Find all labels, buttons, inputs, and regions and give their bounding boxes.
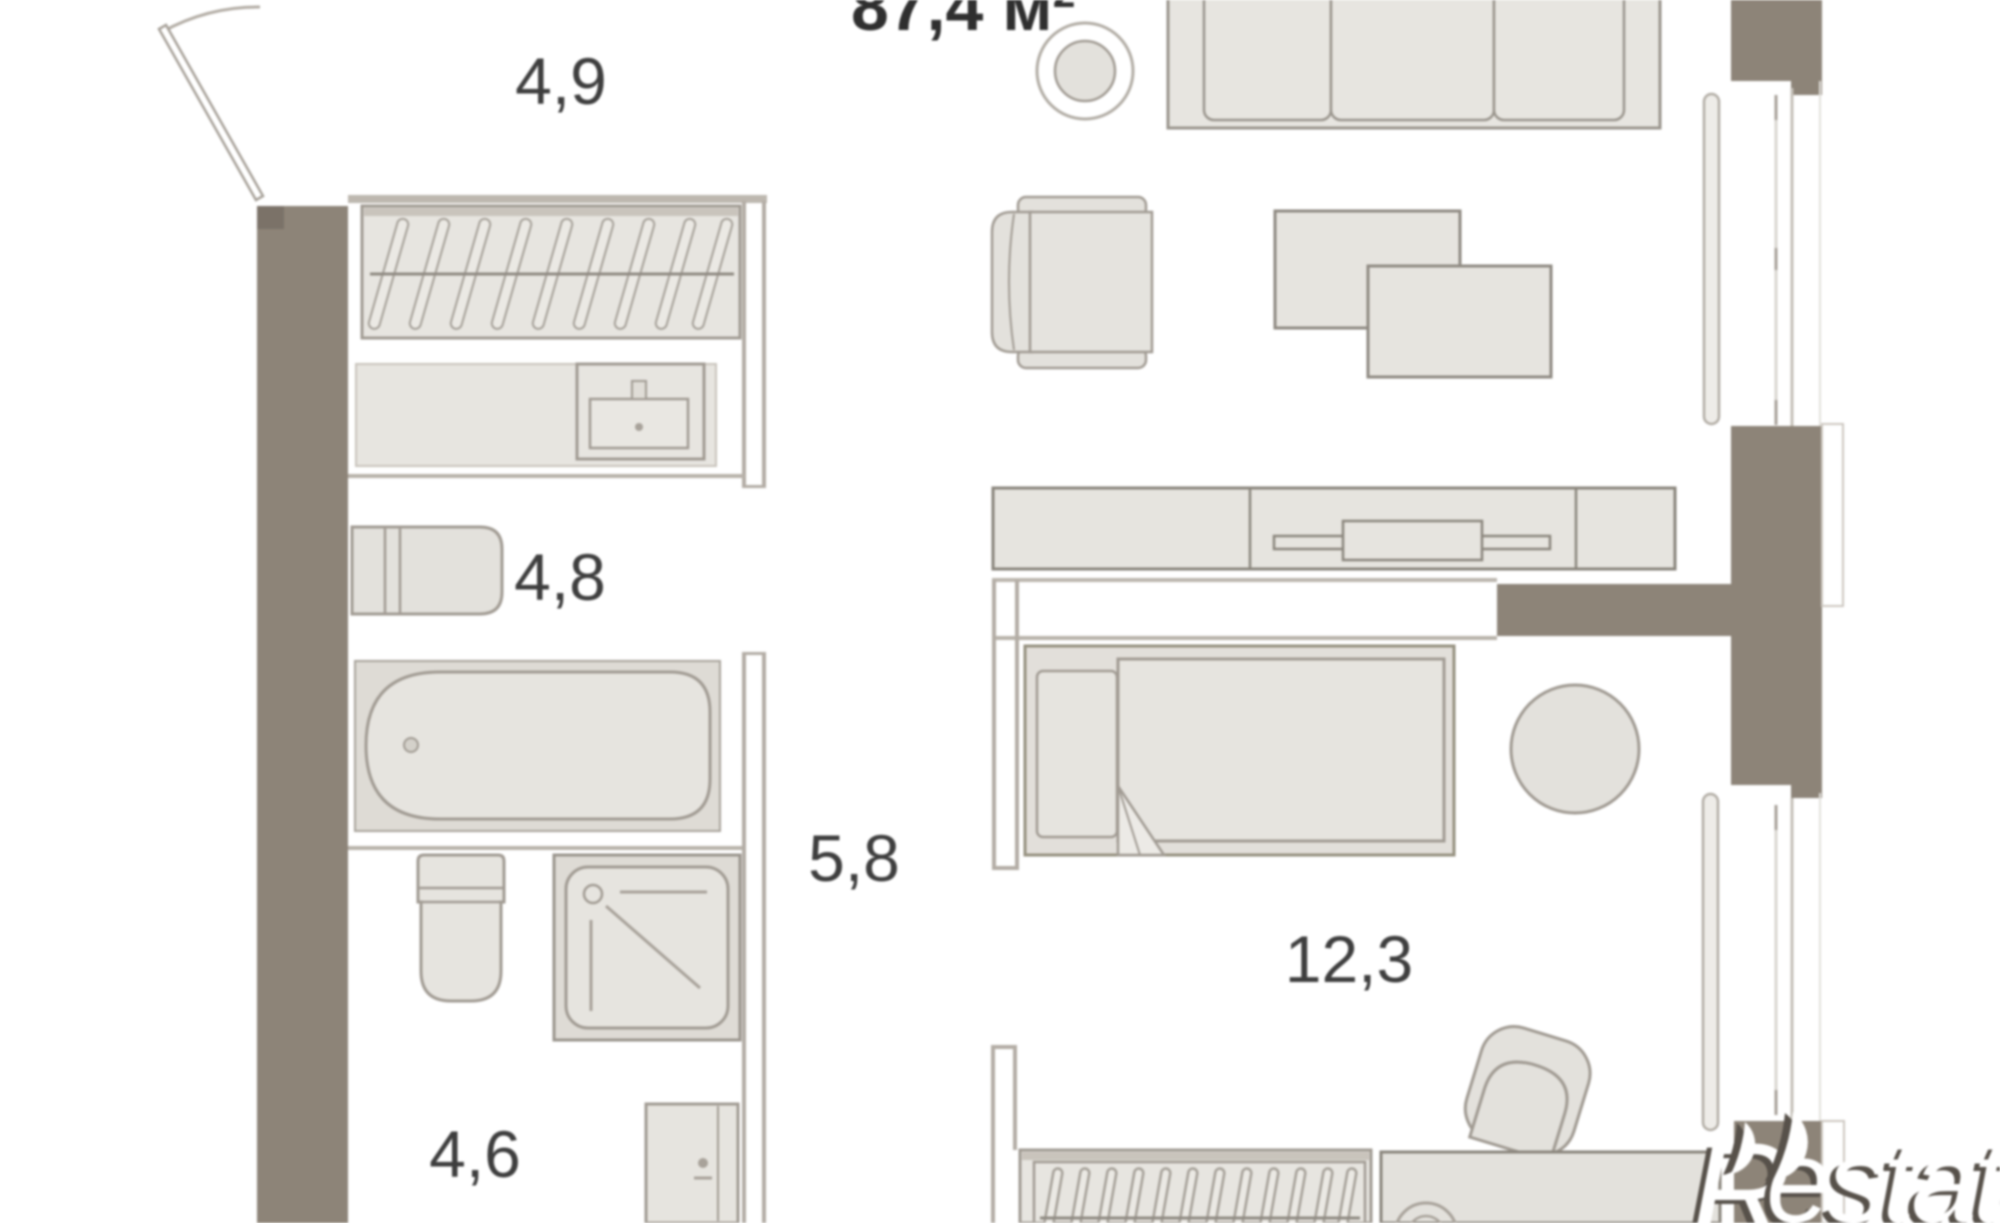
svg-text:4,9: 4,9	[515, 44, 607, 118]
svg-text:12,3: 12,3	[1285, 922, 1413, 996]
svg-text:87,4 м²: 87,4 м²	[851, 0, 1075, 45]
svg-text:4,8: 4,8	[514, 540, 606, 614]
svg-text:4,6: 4,6	[429, 1117, 521, 1191]
svg-text:5,8: 5,8	[808, 821, 900, 895]
